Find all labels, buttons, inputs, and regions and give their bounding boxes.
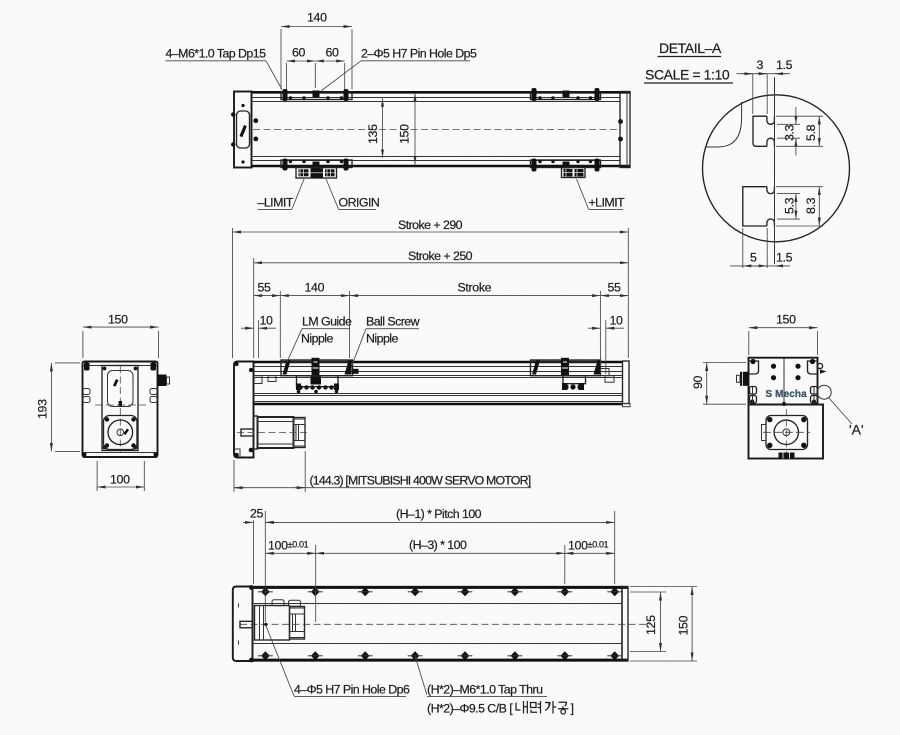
svg-text:ORIGIN: ORIGIN: [339, 196, 380, 210]
svg-text:4–Φ5 H7 Pin Hole Dp6: 4–Φ5 H7 Pin Hole Dp6: [294, 683, 410, 697]
svg-text:+LIMIT: +LIMIT: [589, 196, 626, 210]
svg-text:8.3: 8.3: [804, 197, 818, 214]
svg-text:LM Guide: LM Guide: [302, 315, 352, 329]
svg-text:1.5: 1.5: [776, 58, 793, 72]
svg-text:(H–1) * Pitch 100: (H–1) * Pitch 100: [396, 507, 482, 521]
svg-text:(H*2)–Φ9.5 C/B [: (H*2)–Φ9.5 C/B [: [427, 702, 513, 716]
svg-text:150: 150: [108, 313, 128, 327]
svg-text:25: 25: [250, 507, 264, 521]
svg-text:100: 100: [110, 473, 130, 487]
svg-text:90: 90: [691, 375, 705, 389]
svg-text:Nipple: Nipple: [366, 332, 398, 346]
svg-text:2–Φ5 H7 Pin Hole Dp5: 2–Φ5 H7 Pin Hole Dp5: [361, 47, 477, 61]
svg-text:1.5: 1.5: [776, 251, 793, 265]
svg-text:'A': 'A': [849, 422, 864, 438]
svg-text:Nipple: Nipple: [301, 332, 333, 346]
svg-text:3.3: 3.3: [783, 124, 797, 141]
svg-text:SCALE = 1:10: SCALE = 1:10: [645, 67, 730, 83]
svg-text:(144.3) [MITSUBISHI 400W SERVO: (144.3) [MITSUBISHI 400W SERVO MOTOR]: [310, 474, 531, 488]
svg-text:125: 125: [644, 615, 658, 635]
svg-text:140: 140: [305, 281, 325, 295]
svg-text:Stroke: Stroke: [458, 281, 492, 295]
svg-text:Stroke + 290: Stroke + 290: [398, 218, 463, 232]
svg-text:(H*2)–M6*1.0 Tap Thru: (H*2)–M6*1.0 Tap Thru: [427, 683, 543, 697]
svg-text:5.3: 5.3: [783, 197, 797, 214]
svg-text:Stroke + 250: Stroke + 250: [408, 249, 473, 263]
svg-text:DETAIL–A: DETAIL–A: [659, 40, 722, 56]
svg-text:60: 60: [326, 46, 340, 60]
svg-text:(H–3) * 100: (H–3) * 100: [409, 538, 467, 552]
svg-text:5.8: 5.8: [804, 124, 818, 141]
svg-text:135: 135: [366, 124, 380, 144]
svg-text:4–M6*1.0 Tap Dp15: 4–M6*1.0 Tap Dp15: [166, 47, 267, 61]
svg-text:S Mecha: S Mecha: [766, 389, 808, 400]
svg-text:3: 3: [757, 58, 764, 72]
svg-text:150: 150: [677, 615, 691, 635]
svg-text:5: 5: [750, 251, 757, 265]
svg-text:150: 150: [776, 312, 796, 326]
svg-text:60: 60: [292, 46, 306, 60]
svg-text:Ball Screw: Ball Screw: [366, 315, 420, 329]
svg-text:193: 193: [36, 399, 50, 419]
svg-text:140: 140: [307, 11, 327, 25]
svg-text:]: ]: [571, 702, 574, 716]
svg-text:55: 55: [608, 281, 622, 295]
svg-text:55: 55: [258, 281, 272, 295]
svg-text:10: 10: [610, 314, 624, 328]
svg-text:150: 150: [398, 124, 412, 144]
svg-text:–LIMIT: –LIMIT: [258, 196, 294, 210]
svg-text:10: 10: [260, 314, 274, 328]
